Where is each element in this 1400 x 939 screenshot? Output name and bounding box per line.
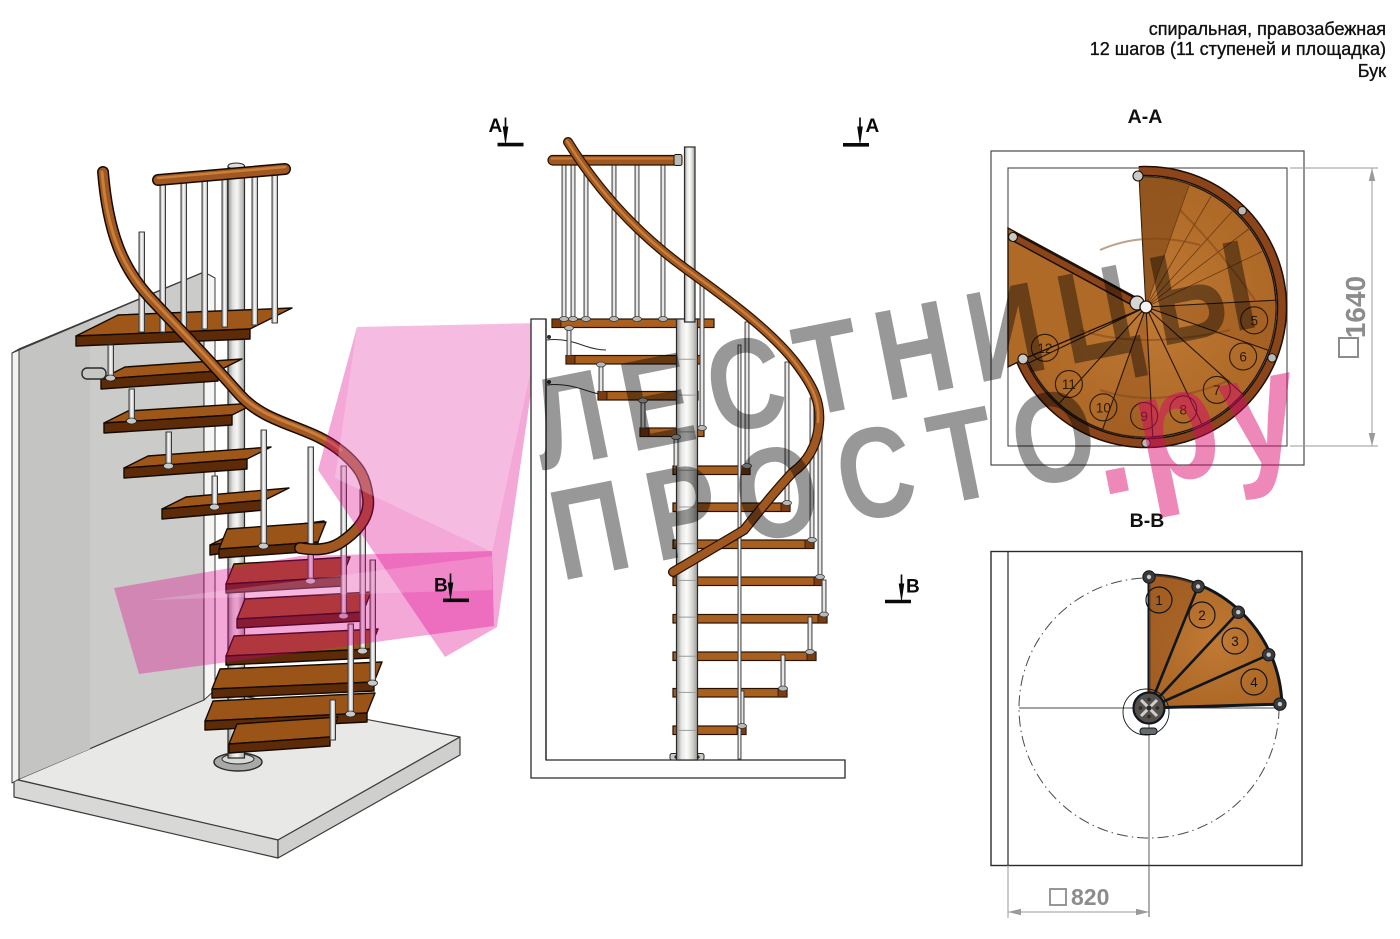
svg-text:2: 2	[1198, 608, 1206, 623]
svg-text:Бук: Бук	[1358, 61, 1386, 81]
svg-text:спиральная, правозабежная: спиральная, правозабежная	[1149, 19, 1386, 39]
svg-text:А: А	[489, 116, 503, 137]
svg-text:В: В	[906, 577, 920, 598]
svg-text:1: 1	[1155, 593, 1163, 608]
svg-text:А: А	[866, 116, 880, 137]
svg-text:820: 820	[1071, 884, 1109, 910]
svg-text:В: В	[434, 576, 448, 597]
svg-text:4: 4	[1250, 675, 1258, 690]
svg-text:3: 3	[1231, 634, 1239, 649]
svg-text:1640: 1640	[1340, 276, 1371, 338]
svg-text:А-А: А-А	[1128, 106, 1163, 128]
svg-text:12 шагов (11 ступеней и площад: 12 шагов (11 ступеней и площадка)	[1090, 39, 1386, 59]
